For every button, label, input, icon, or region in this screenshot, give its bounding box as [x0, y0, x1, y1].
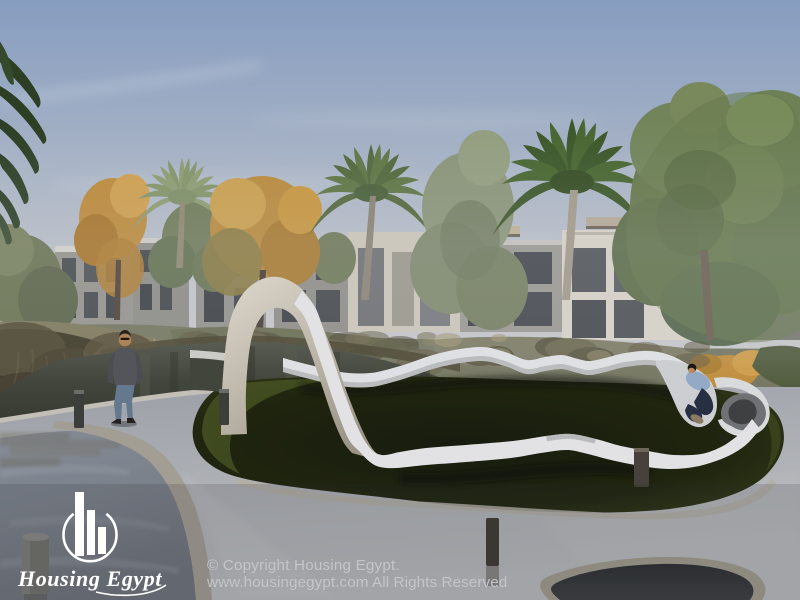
svg-text:© Copyright Housing Egypt.: © Copyright Housing Egypt.: [207, 557, 400, 574]
svg-text:www.housingegypt.com All Right: www.housingegypt.com All Rights Reserved: [206, 574, 507, 591]
svg-text:Housing Egypt: Housing Egypt: [17, 566, 162, 591]
